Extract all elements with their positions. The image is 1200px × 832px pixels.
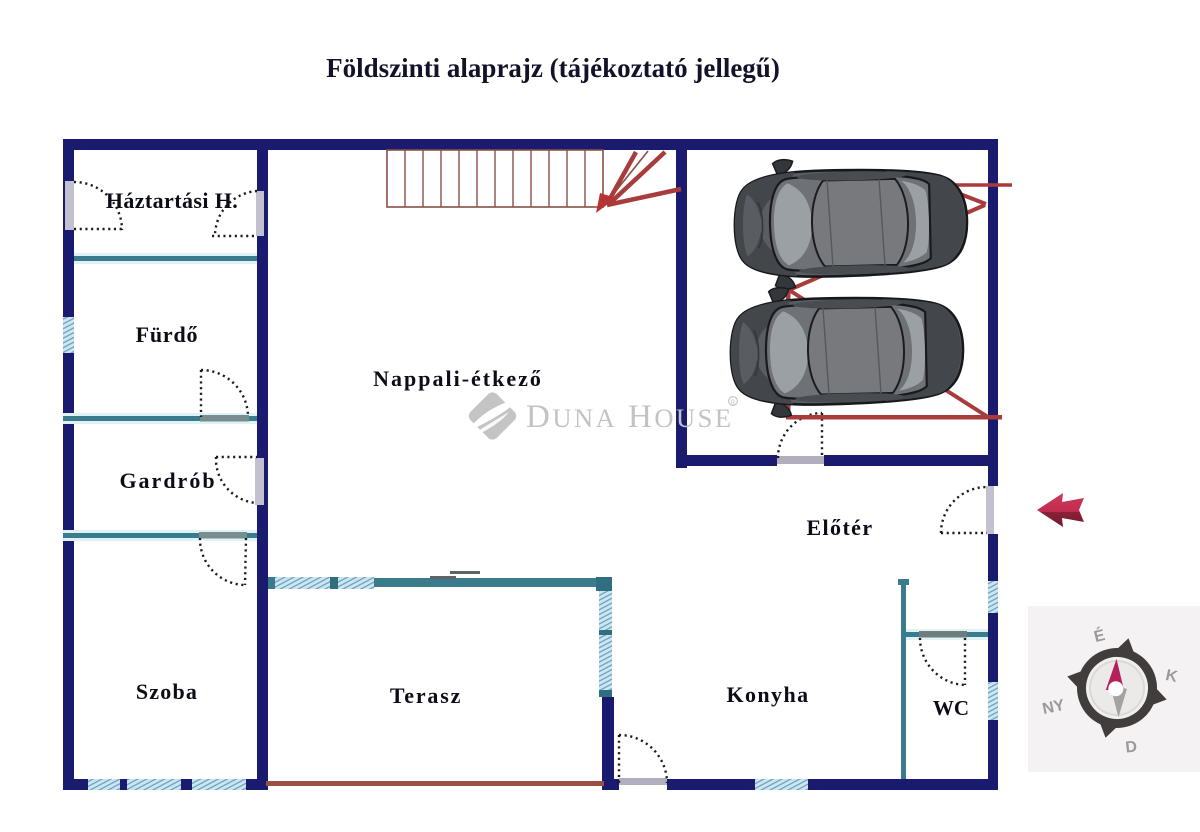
svg-text:Nappali-étkező: Nappali-étkező [373,366,543,391]
svg-text:Gardrób: Gardrób [119,468,216,493]
svg-text:Szoba: Szoba [136,679,198,704]
svg-text:WC: WC [933,696,969,720]
svg-text:R: R [731,399,736,407]
svg-text:Előtér: Előtér [806,515,873,540]
svg-text:Fürdő: Fürdő [136,322,199,347]
svg-text:Földszinti alaprajz (tájékozta: Földszinti alaprajz (tájékoztató jellegű… [326,53,780,83]
svg-text:DUNA HOUSE: DUNA HOUSE [526,399,734,435]
svg-text:Terasz: Terasz [390,683,462,708]
svg-text:Konyha: Konyha [727,682,810,707]
svg-text:D: D [1125,738,1138,756]
svg-text:Háztartási H.: Háztartási H. [106,188,238,213]
